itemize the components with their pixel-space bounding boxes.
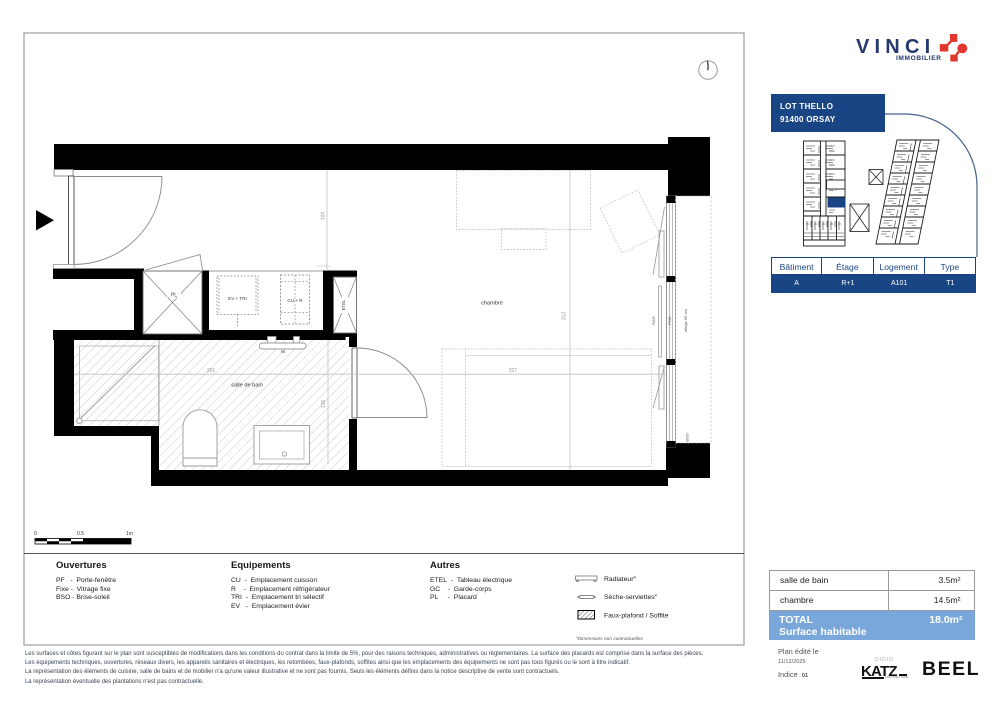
svg-text:327: 327 <box>509 368 518 374</box>
svg-text:291: 291 <box>207 368 216 374</box>
svg-text:Sèche-serviettes˟: Sèche-serviettes˟ <box>604 593 658 601</box>
svg-text:Radiateur˟: Radiateur˟ <box>604 575 636 583</box>
svg-text:313: 313 <box>562 312 568 321</box>
svg-text:104: 104 <box>321 212 327 221</box>
svg-text:0: 0 <box>34 531 37 537</box>
svg-text:allège 95 cm: allège 95 cm <box>683 308 688 331</box>
svg-text:BSO: BSO <box>685 433 690 441</box>
svg-text:ss: ss <box>281 349 285 354</box>
svg-text:salle de bain: salle de bain <box>231 383 262 389</box>
svg-text:Faux-plafond / Soffite: Faux-plafond / Soffite <box>604 613 669 620</box>
svg-text:POE: POE <box>667 316 672 325</box>
svg-text:˟Dimensions non contractuelles: ˟Dimensions non contractuelles <box>576 635 644 642</box>
svg-text:RAD: RAD <box>651 316 656 325</box>
svg-text:1m: 1m <box>126 531 133 537</box>
svg-text:0.5: 0.5 <box>77 531 84 537</box>
svg-text:136: 136 <box>321 400 327 409</box>
svg-text:ETEL: ETEL <box>341 299 346 310</box>
svg-text:PL: PL <box>171 293 177 299</box>
svg-text:CU + R: CU + R <box>287 298 303 303</box>
svg-text:EV + TRI: EV + TRI <box>228 296 247 301</box>
svg-text:chambre: chambre <box>481 301 503 307</box>
